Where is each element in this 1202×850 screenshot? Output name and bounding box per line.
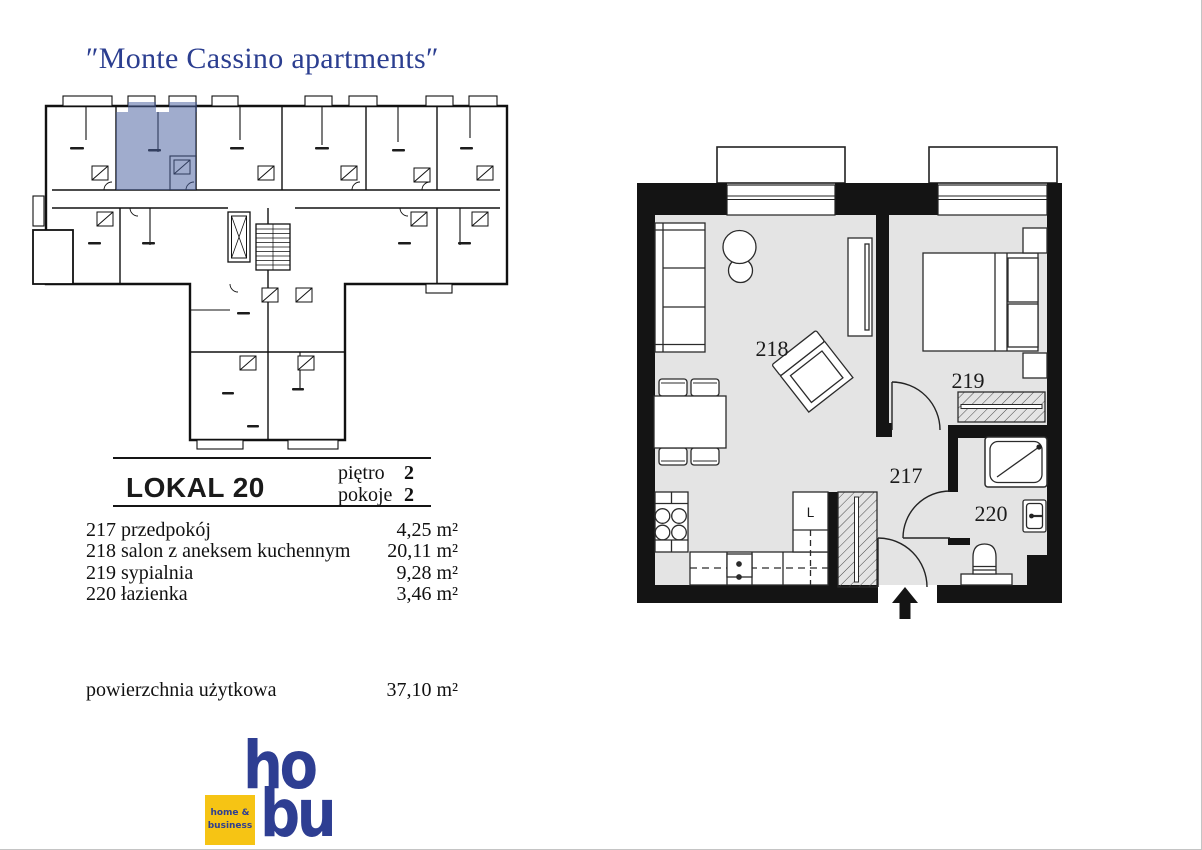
floor-label: piętro [338,462,385,485]
bed [923,253,1038,351]
bedside-table [1023,353,1047,378]
floor-value: 2 [404,462,414,485]
total-area-label: powierzchnia użytkowa [86,679,276,702]
balconies [717,147,1057,183]
highlighted-unit-overlay [116,102,197,190]
floorplan-sheet: ″Monte Cassino apartments″ [0,0,1202,850]
room-label-bath: 220 [975,501,1008,526]
cabinet [848,238,872,336]
room-area-row: 217 przedpokój 4,25 m² [86,520,458,541]
rooms-value: 2 [404,484,414,507]
room-area-row: 220 łazienka 3,46 m² [86,584,458,605]
window-living [727,185,835,215]
room-area-row: 219 sypialnia 9,28 m² [86,563,458,584]
room-name: 218 salon z aneksem kuchennym [86,541,350,562]
page-title: ″Monte Cassino apartments″ [86,42,439,76]
rooms-label: pokoje [338,484,392,507]
room-name: 219 sypialnia [86,563,193,584]
window-bedroom [938,185,1047,215]
logo-badge-line2: business [208,820,253,833]
room-name: 217 przedpokój [86,520,211,541]
stairwell [256,224,290,270]
overview-outline [33,106,507,440]
room-label-living: 218 [756,336,789,361]
table-rule-bottom [113,505,431,507]
room-area-list: 217 przedpokój 4,25 m² 218 salon z aneks… [86,520,458,606]
kitchen-counter [690,552,828,585]
room-area: 20,11 m² [387,541,458,562]
room-area: 3,46 m² [396,584,458,605]
room-name: 220 łazienka [86,584,188,605]
apartment-floor-plan: 218 219 217 220 L [598,120,1078,630]
building-overview-plan [30,90,535,455]
logo-word-bu: bu [260,781,333,847]
total-area-row: powierzchnia użytkowa 37,10 m² [86,679,458,702]
hall-closet [838,492,877,587]
logo-badge-line1: home & [210,807,249,820]
washbasin [1023,500,1046,532]
total-area-value: 37,10 m² [386,679,458,702]
room-label-hall: 217 [890,463,923,488]
bedroom-wardrobe [958,392,1045,422]
room-label-bedroom: 219 [952,368,985,393]
room-area: 9,28 m² [396,563,458,584]
cooktop [655,492,688,552]
fridge-label: L [807,505,815,520]
table-rule-top [113,457,431,459]
room-area-row: 218 salon z aneksem kuchennym 20,11 m² [86,541,458,562]
shower [985,437,1047,487]
unit-title: LOKAL 20 [126,472,265,504]
bedside-shelf [1023,228,1047,253]
room-area: 4,25 m² [396,520,458,541]
elevator-shaft [228,212,250,262]
logo-badge: home & business [205,795,255,845]
sofa [655,223,705,352]
